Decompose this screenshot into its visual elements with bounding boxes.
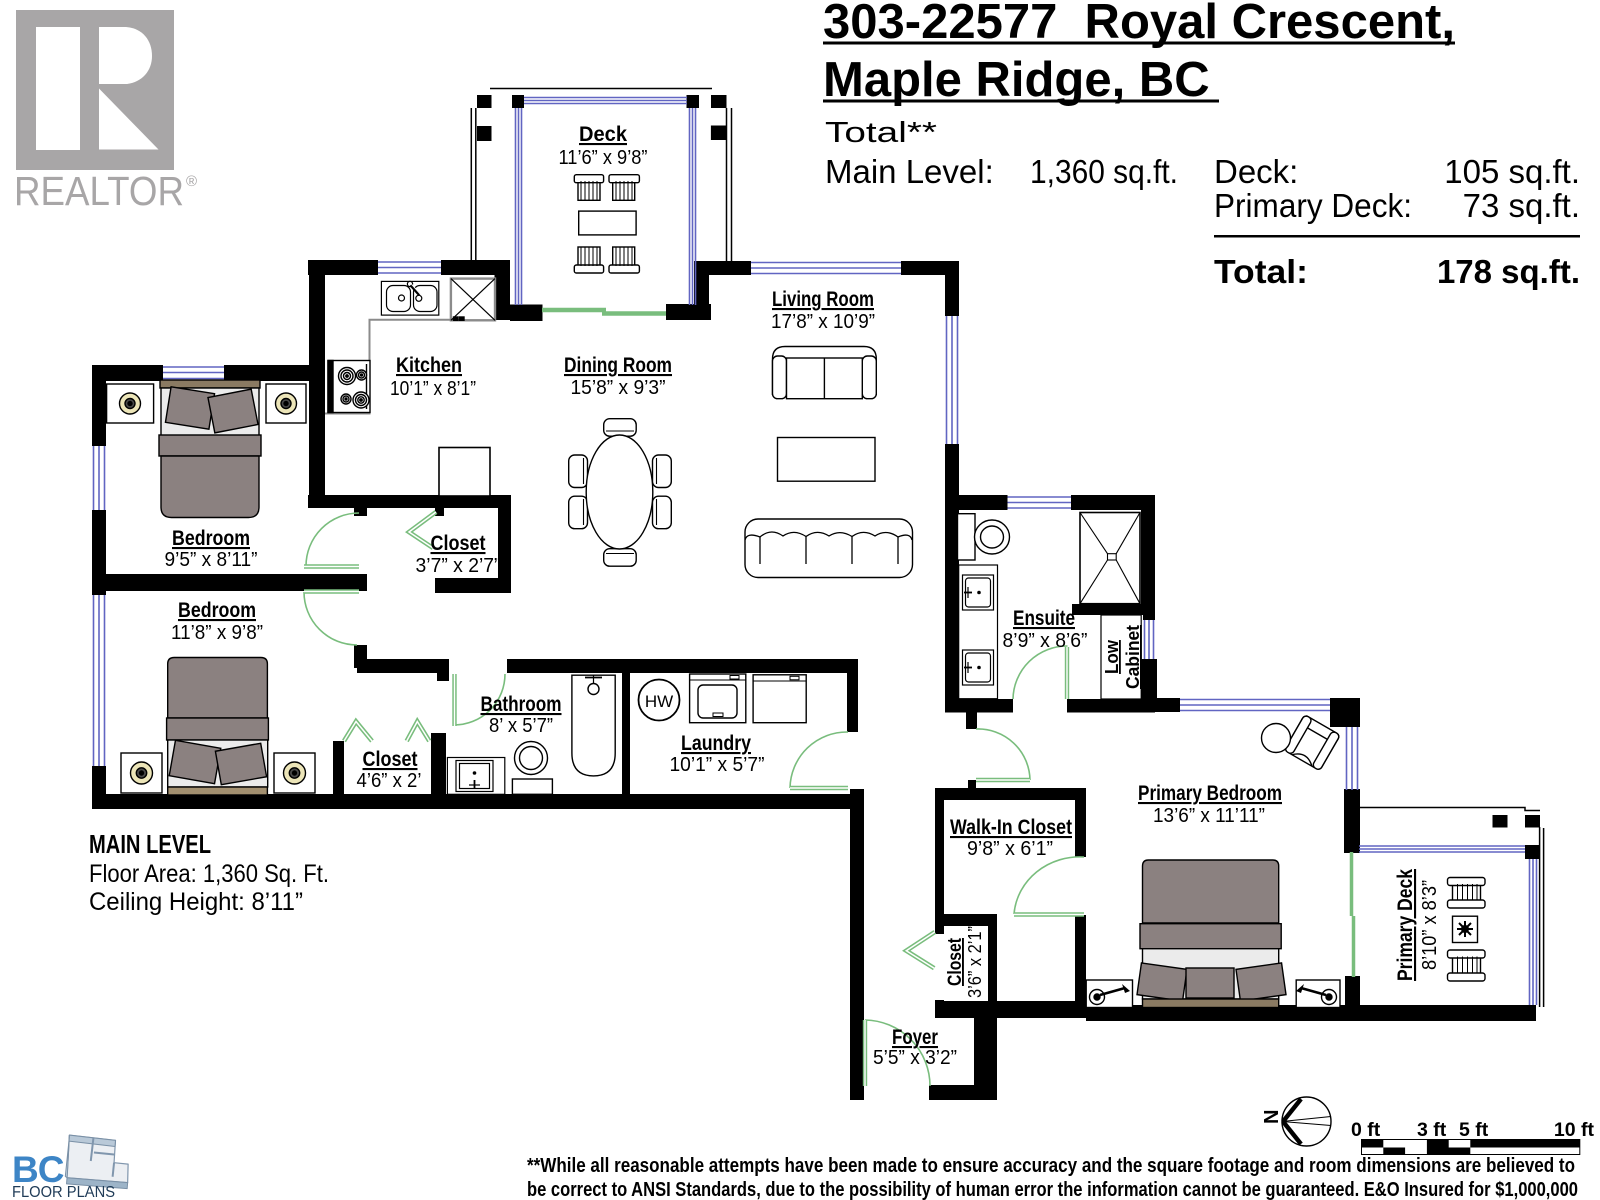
svg-text:Closet: Closet (945, 937, 966, 986)
svg-text:FLOOR PLANS: FLOOR PLANS (12, 1184, 115, 1200)
svg-text:Bathroom: Bathroom (481, 693, 562, 716)
svg-text:Living Room: Living Room (772, 288, 874, 311)
svg-text:**While all reasonable attempt: **While all reasonable attempts have bee… (527, 1154, 1575, 1177)
svg-text:105 sq.ft.: 105 sq.ft. (1444, 153, 1580, 190)
svg-text:8’9” x 8’6”: 8’9” x 8’6” (1003, 630, 1088, 652)
svg-text:Closet: Closet (431, 532, 486, 555)
svg-text:Primary Deck:: Primary Deck: (1214, 187, 1412, 224)
svg-text:9’8” x 6’1”: 9’8” x 6’1” (967, 838, 1053, 860)
svg-text:Primary Bedroom: Primary Bedroom (1138, 782, 1282, 805)
svg-text:8’10” x 8’3”: 8’10” x 8’3” (1419, 880, 1441, 970)
svg-text:Dining Room: Dining Room (564, 354, 672, 377)
svg-text:3’7” x 2’7”: 3’7” x 2’7” (416, 555, 501, 577)
svg-text:8’ x 5’7”: 8’ x 5’7” (489, 715, 553, 737)
svg-text:be correct to ANSI Standards,: be correct to ANSI Standards, due to the… (527, 1178, 1578, 1200)
svg-text:10’1” x 8’1”: 10’1” x 8’1” (390, 378, 476, 400)
svg-text:Primary Deck: Primary Deck (1394, 869, 1417, 981)
svg-text:Closet: Closet (363, 748, 418, 771)
svg-text:1,360 sq.ft.: 1,360 sq.ft. (1030, 153, 1178, 190)
svg-text:Kitchen: Kitchen (396, 354, 462, 377)
svg-text:Total**: Total** (825, 117, 937, 149)
svg-text:178 sq.ft.: 178 sq.ft. (1437, 253, 1580, 290)
svg-text:3 ft: 3 ft (1417, 1119, 1447, 1141)
svg-text:11’6” x 9’8”: 11’6” x 9’8” (559, 147, 648, 169)
svg-text:0 ft: 0 ft (1351, 1119, 1381, 1141)
svg-text:Maple Ridge, BC: Maple Ridge, BC (823, 53, 1210, 107)
svg-text:HW: HW (645, 692, 673, 711)
svg-text:Floor Area: 1,360 Sq. Ft.: Floor Area: 1,360 Sq. Ft. (89, 860, 329, 888)
svg-text:N: N (1261, 1110, 1283, 1124)
svg-text:9’5” x 8’11”: 9’5” x 8’11” (165, 549, 258, 571)
svg-text:Foyer: Foyer (892, 1026, 938, 1049)
svg-text:17’8” x 10’9”: 17’8” x 10’9” (771, 311, 875, 333)
svg-text:3’6” x 2’1”: 3’6” x 2’1” (965, 926, 985, 998)
svg-text:Walk-In Closet: Walk-In Closet (950, 816, 1072, 839)
svg-text:MAIN LEVEL: MAIN LEVEL (89, 829, 211, 859)
svg-text:Deck: Deck (579, 123, 627, 146)
svg-text:73 sq.ft.: 73 sq.ft. (1463, 187, 1580, 224)
svg-text:5’5” x 3’2”: 5’5” x 3’2” (873, 1047, 957, 1069)
svg-text:®: ® (186, 173, 197, 190)
svg-text:Ensuite: Ensuite (1013, 607, 1075, 630)
svg-text:Main Level:: Main Level: (825, 153, 994, 190)
svg-text:11’8” x 9’8”: 11’8” x 9’8” (171, 622, 263, 644)
svg-text:5 ft: 5 ft (1459, 1119, 1489, 1141)
svg-text:Low: Low (1102, 639, 1122, 674)
svg-text:Total:: Total: (1214, 253, 1308, 290)
svg-text:10 ft: 10 ft (1554, 1119, 1595, 1141)
svg-text:13’6” x 11’11”: 13’6” x 11’11” (1153, 805, 1265, 827)
svg-text:REALTOR: REALTOR (14, 168, 184, 214)
svg-text:10’1” x 5’7”: 10’1” x 5’7” (670, 754, 765, 776)
svg-text:15’8” x 9’3”: 15’8” x 9’3” (571, 377, 666, 399)
svg-text:Bedroom: Bedroom (172, 527, 250, 550)
svg-text:4’6” x 2’: 4’6” x 2’ (357, 770, 422, 792)
svg-text:Cabinet: Cabinet (1123, 625, 1143, 689)
svg-text:Laundry: Laundry (681, 732, 751, 755)
svg-text:Bedroom: Bedroom (178, 599, 256, 622)
svg-text:Ceiling Height: 8’11”: Ceiling Height: 8’11” (89, 888, 303, 916)
svg-text:Deck:: Deck: (1214, 153, 1298, 190)
